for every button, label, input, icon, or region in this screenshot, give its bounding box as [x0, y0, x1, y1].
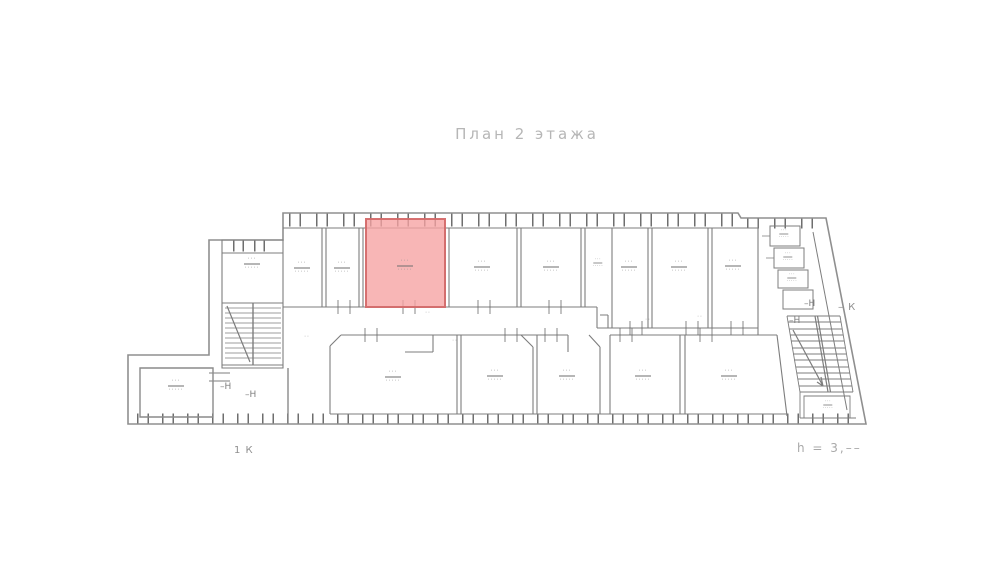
- room-label: ········: [244, 258, 260, 271]
- n-mark: –Н: [804, 299, 815, 309]
- annotation-smudge: ··: [645, 317, 651, 324]
- room-label: ········: [823, 400, 834, 410]
- room-label: ········: [559, 370, 575, 383]
- room-label: ········: [725, 260, 741, 273]
- n-mark: –Н: [789, 316, 800, 326]
- annotation-smudge: ··: [697, 314, 703, 321]
- room-label: ········: [294, 262, 310, 275]
- room-label: ········: [593, 258, 604, 268]
- room-label: ········: [783, 252, 794, 262]
- floor-plan-drawing: [0, 0, 1000, 587]
- room-label: ········: [621, 261, 637, 274]
- annotation-smudge: ··: [452, 338, 458, 345]
- room-label: ········: [787, 273, 798, 283]
- floor-plan-page: План 2 этажа h = 3,–– 1 К – К –Н –Н –Н –…: [0, 0, 1000, 587]
- annotation-smudge: ··: [304, 334, 310, 341]
- room-label: ········: [721, 370, 737, 383]
- room-label: ········: [168, 380, 184, 393]
- height-note: h = 3,––: [797, 441, 862, 455]
- top-row-walls: [283, 218, 758, 335]
- outer-walls: [128, 213, 866, 424]
- right-section-walls: [762, 226, 847, 410]
- room-label: ········: [487, 370, 503, 383]
- room-label: ········: [635, 370, 651, 383]
- room-label: ········: [671, 261, 687, 274]
- n-mark: –Н: [220, 382, 231, 392]
- room-label: ········: [474, 261, 490, 274]
- room-label: ········: [543, 261, 559, 274]
- room-label: ········: [334, 262, 350, 275]
- room-label-highlighted: ········: [397, 260, 413, 273]
- k-mark-right: – К: [838, 302, 856, 313]
- plan-title: План 2 этажа: [455, 125, 599, 143]
- room-label: ········: [385, 371, 401, 384]
- annotation-smudge: ··: [425, 310, 431, 317]
- k-mark-left: 1 К: [234, 445, 254, 456]
- room-label: ········: [779, 229, 790, 239]
- n-mark: –Н: [245, 390, 256, 400]
